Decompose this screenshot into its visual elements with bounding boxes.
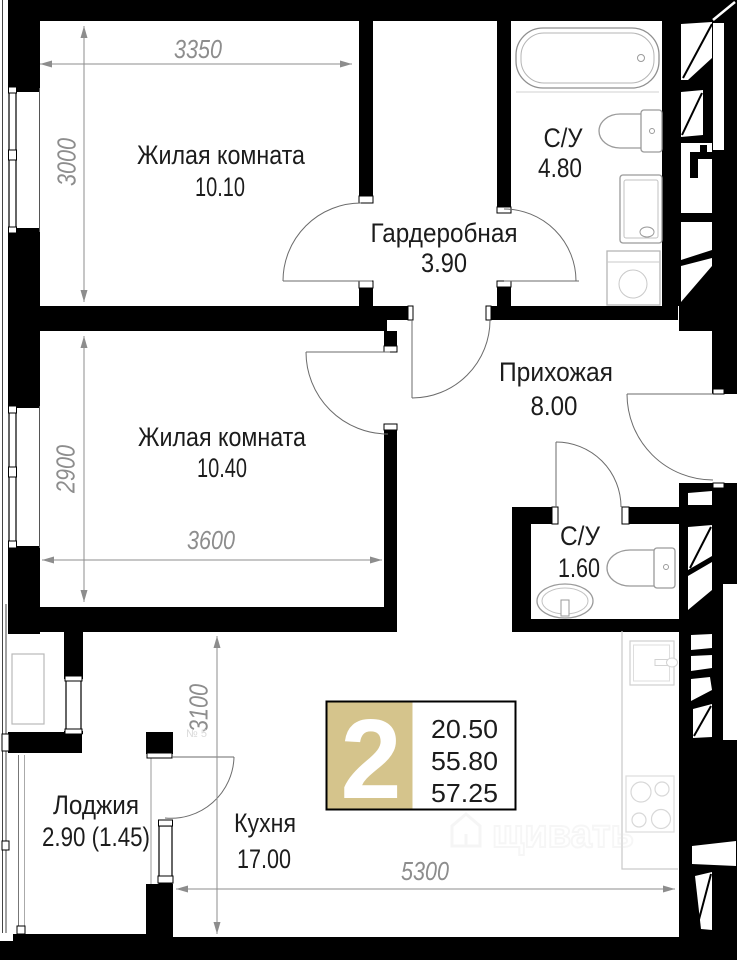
- svg-text:щивать: щивать: [492, 812, 634, 856]
- svg-text:10.40: 10.40: [197, 453, 247, 483]
- svg-text:1.60: 1.60: [558, 553, 600, 583]
- svg-text:3100: 3100: [184, 684, 214, 732]
- svg-text:5300: 5300: [401, 856, 449, 886]
- svg-text:4.80: 4.80: [538, 153, 582, 183]
- svg-text:Кухня: Кухня: [234, 808, 296, 838]
- svg-text:Гардеробная: Гардеробная: [371, 218, 518, 248]
- svg-text:2: 2: [341, 696, 402, 822]
- svg-text:55.80: 55.80: [431, 746, 498, 776]
- svg-text:8.00: 8.00: [531, 391, 578, 421]
- svg-text:3350: 3350: [174, 34, 222, 64]
- svg-text:С/У: С/У: [560, 521, 601, 551]
- svg-text:3.90: 3.90: [421, 248, 467, 278]
- svg-text:2.90 (1.45): 2.90 (1.45): [42, 822, 150, 852]
- svg-text:10.10: 10.10: [195, 172, 245, 202]
- svg-text:Жилая комната: Жилая комната: [137, 140, 306, 170]
- svg-text:17.00: 17.00: [237, 844, 291, 874]
- svg-text:20.50: 20.50: [431, 714, 498, 744]
- svg-text:Жилая комната: Жилая комната: [138, 422, 307, 452]
- svg-text:57.25: 57.25: [431, 778, 498, 808]
- svg-text:С/У: С/У: [544, 123, 584, 153]
- svg-text:3000: 3000: [52, 138, 82, 186]
- svg-text:Прихожая: Прихожая: [499, 357, 613, 387]
- svg-text:2900: 2900: [51, 445, 81, 494]
- svg-text:3600: 3600: [187, 525, 235, 555]
- svg-text:№ 5: № 5: [186, 728, 207, 740]
- svg-text:Лоджия: Лоджия: [53, 790, 139, 820]
